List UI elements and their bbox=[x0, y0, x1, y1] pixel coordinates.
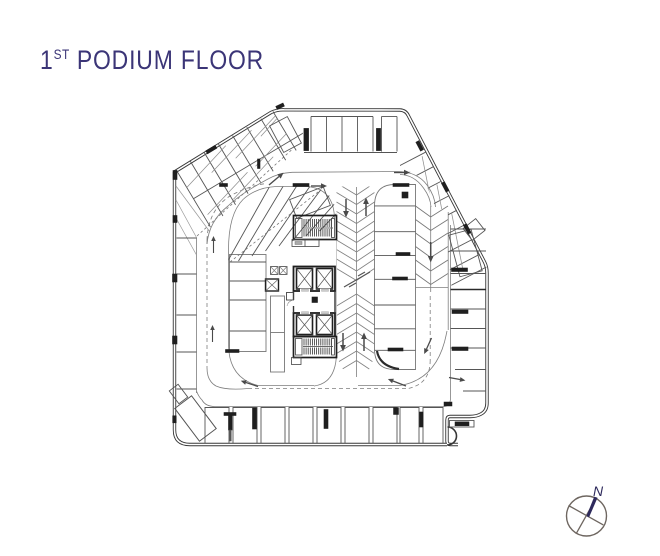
svg-text:N: N bbox=[593, 483, 604, 499]
